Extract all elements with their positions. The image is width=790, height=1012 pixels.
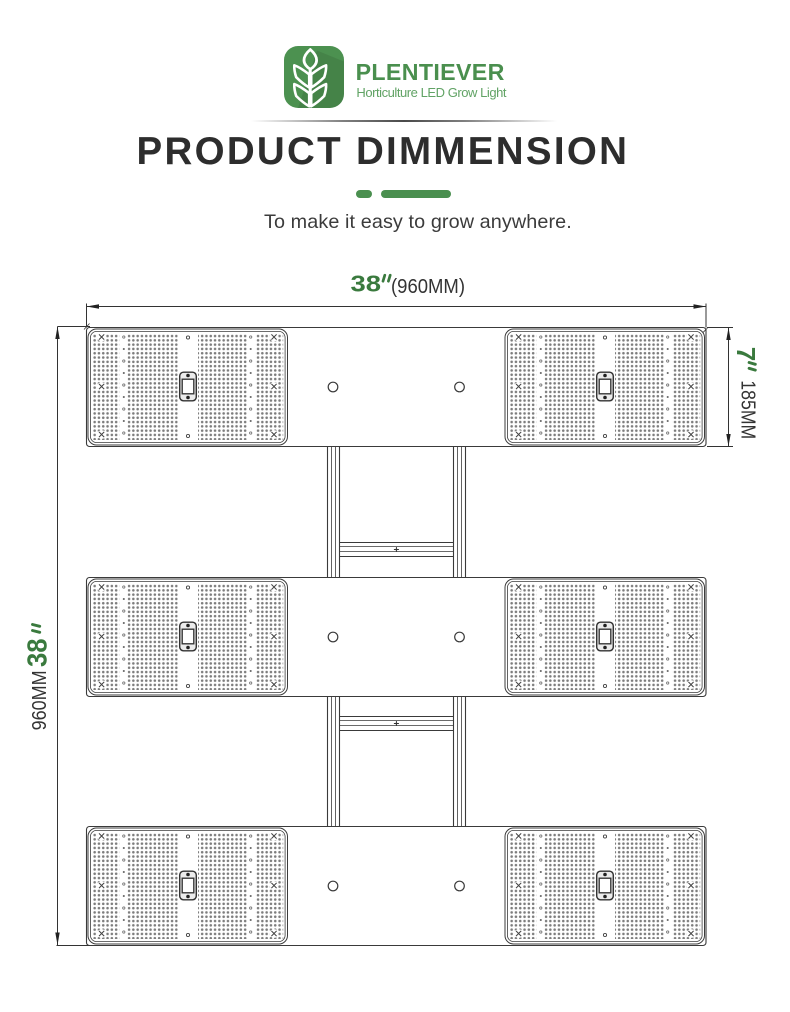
- svg-text:38: 38: [22, 639, 53, 668]
- svg-text:960MM: 960MM: [29, 670, 51, 730]
- svg-text:185MM: 185MM: [737, 380, 760, 439]
- svg-text:7: 7: [731, 347, 761, 361]
- svg-text:38: 38: [351, 271, 382, 297]
- svg-text:(960MM): (960MM): [391, 275, 465, 298]
